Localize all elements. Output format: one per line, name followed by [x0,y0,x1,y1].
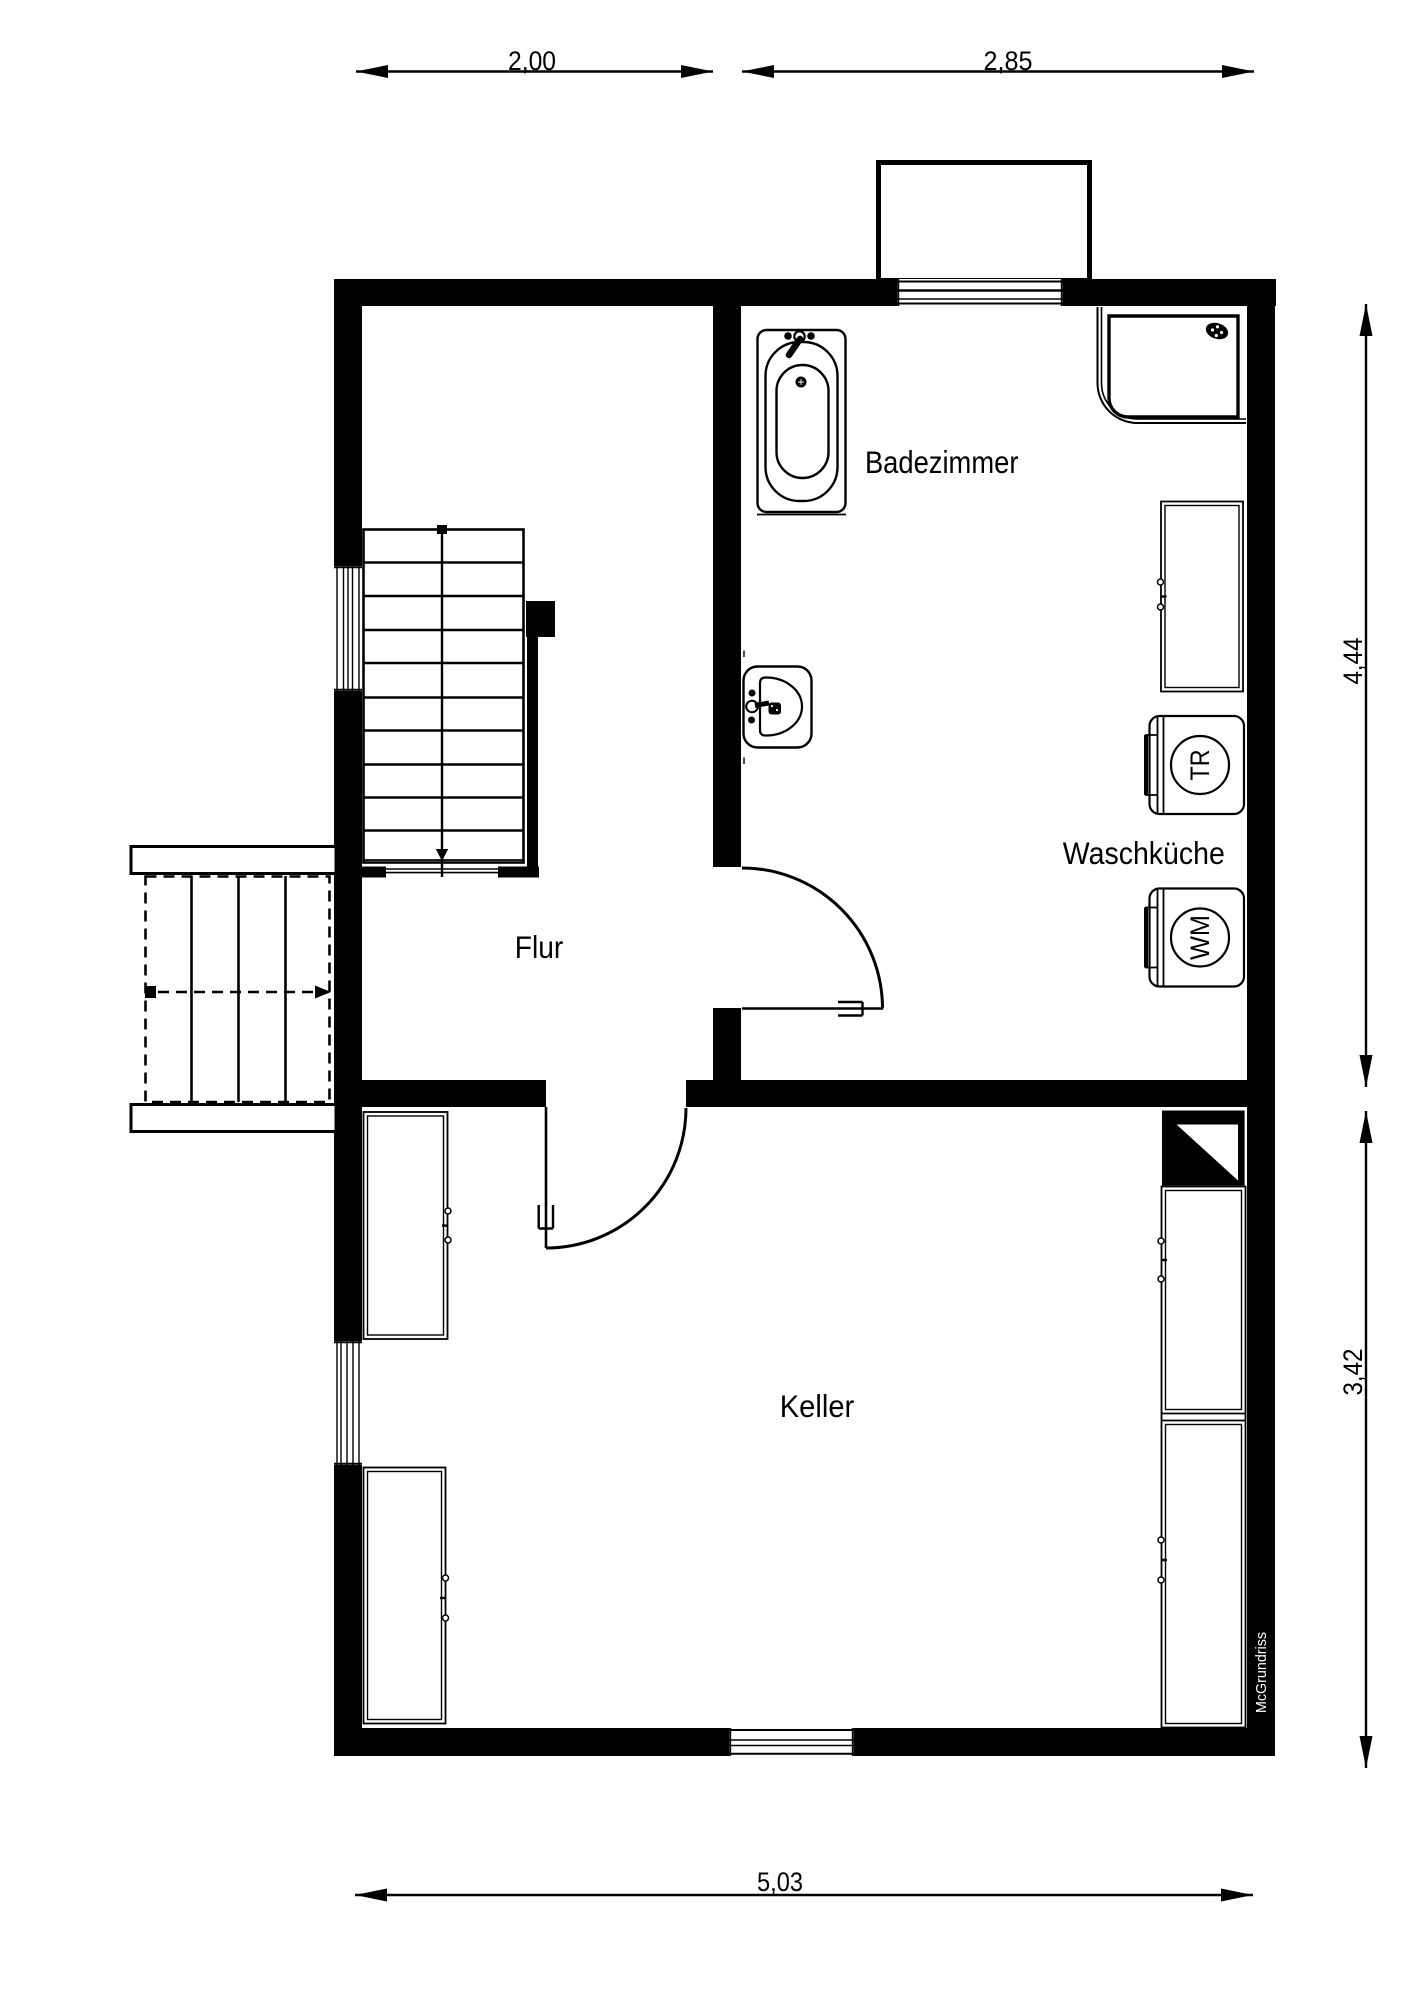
svg-text:5,03: 5,03 [757,1867,803,1897]
svg-text:4,44: 4,44 [1338,638,1368,685]
svg-text:TR: TR [1185,750,1215,781]
svg-text:Flur: Flur [515,929,564,965]
svg-text:2,00: 2,00 [508,46,556,76]
svg-text:McGrundriss: McGrundriss [1253,1632,1270,1713]
svg-text:Keller: Keller [780,1388,855,1424]
svg-text:Badezimmer: Badezimmer [865,444,1019,480]
svg-text:2,85: 2,85 [984,46,1033,76]
svg-text:3,42: 3,42 [1338,1349,1368,1396]
svg-text:Waschküche: Waschküche [1063,835,1225,871]
svg-text:WM: WM [1185,915,1215,960]
